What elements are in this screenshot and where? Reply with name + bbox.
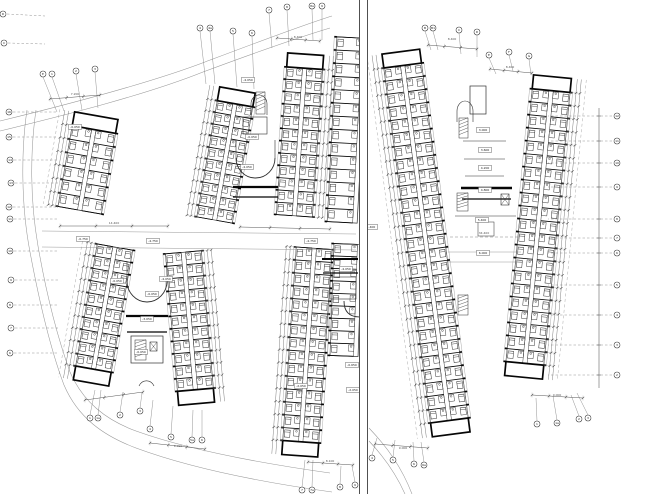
elevation-label: -4.050 <box>340 266 353 271</box>
svg-text:9: 9 <box>321 4 323 8</box>
svg-text:8: 8 <box>616 217 618 221</box>
grid-bubble: 1 <box>49 71 55 77</box>
svg-text:7: 7 <box>301 488 303 492</box>
grid-bubble: 4 <box>369 455 375 461</box>
elevation-label: -4.050 <box>160 276 173 281</box>
svg-text:1: 1 <box>89 416 91 420</box>
grid-bubble: 8a <box>309 3 315 9</box>
dimension-text: 8.400 <box>294 35 303 39</box>
svg-text:9: 9 <box>616 185 618 189</box>
grid-bubble: 6 <box>411 461 417 467</box>
grid-bubble: B <box>422 25 428 31</box>
svg-text:5: 5 <box>616 283 618 287</box>
svg-text:1a: 1a <box>555 421 559 425</box>
svg-text:3: 3 <box>616 343 618 347</box>
grid-bubble: 2 <box>614 372 620 378</box>
grid-bubble: 9 <box>614 184 620 190</box>
svg-text:12: 12 <box>7 205 11 209</box>
svg-text:-4.050: -4.050 <box>243 78 253 82</box>
svg-text:5: 5 <box>170 435 172 439</box>
svg-text:1: 1 <box>51 72 53 76</box>
grid-bubble: 5a <box>189 437 195 443</box>
grid-bubble: 4a <box>207 25 213 31</box>
svg-text:11: 11 <box>8 217 12 221</box>
dimension-text: 8.400 <box>506 65 515 69</box>
dimension-text: 9.000 <box>174 444 183 448</box>
elevation-label: -0.650 <box>346 362 359 367</box>
svg-text:4: 4 <box>371 456 373 460</box>
svg-text:-3.050: -3.050 <box>142 317 152 321</box>
svg-text:-4.050: -4.050 <box>161 277 171 281</box>
dimension-text: 14.400 <box>109 221 120 225</box>
svg-text:9: 9 <box>10 278 12 282</box>
svg-text:-0.750: -0.750 <box>78 237 88 241</box>
grid-bubble: 6 <box>249 30 255 36</box>
grid-bubble: 3 <box>585 415 591 421</box>
svg-text:5a: 5a <box>190 438 194 442</box>
svg-text:E: E <box>488 53 490 57</box>
grid-bubble: 1a <box>554 420 560 426</box>
svg-text:6: 6 <box>251 31 253 35</box>
dimension-text: 7.200 <box>71 92 80 96</box>
grid-bubble: D <box>474 29 480 35</box>
grid-bubble: 13 <box>8 180 14 186</box>
grid-bubble: E <box>486 52 492 58</box>
svg-text:3.600: 3.600 <box>481 148 490 152</box>
floor-plan-drawing: -0.050-4.050-0.050-4.050-0.750-4.750-0.0… <box>0 0 650 494</box>
elevation-label: -4.750 <box>305 238 318 243</box>
svg-text:-0.050: -0.050 <box>112 279 122 283</box>
grid-bubble: 1a <box>95 415 101 421</box>
svg-text:1: 1 <box>536 422 538 426</box>
elevation-label: -4.050 <box>241 164 254 169</box>
svg-text:2: 2 <box>75 69 77 73</box>
svg-text:6.000: 6.000 <box>479 251 488 255</box>
svg-text:7: 7 <box>10 326 12 330</box>
dimension-text: 9.000 <box>553 393 562 397</box>
elevation-label: 5.400 <box>476 217 489 222</box>
elevation-label: -4.750 <box>147 238 160 243</box>
svg-text:2: 2 <box>578 417 580 421</box>
svg-text:14: 14 <box>8 158 12 162</box>
svg-text:-0.650: -0.650 <box>347 363 357 367</box>
grid-bubble: 6a <box>421 462 427 468</box>
dimension-text: 34.400 <box>479 231 490 235</box>
svg-text:12: 12 <box>615 114 619 118</box>
elevation-label: 6.000 <box>477 250 490 255</box>
svg-text:16: 16 <box>7 110 11 114</box>
grid-bubble: 2 <box>576 416 582 422</box>
grid-bubble: 16 <box>6 109 12 115</box>
svg-text:3: 3 <box>94 67 96 71</box>
svg-text:15: 15 <box>7 135 11 139</box>
svg-text:3: 3 <box>139 409 141 413</box>
dimension-text: 8.400 <box>448 37 457 41</box>
svg-text:4: 4 <box>199 26 201 30</box>
svg-text:-4.750: -4.750 <box>306 239 316 243</box>
elevation-label: -0.750 <box>77 236 90 241</box>
svg-text:2: 2 <box>119 413 121 417</box>
svg-text:8: 8 <box>286 5 288 9</box>
grid-bubble: 5 <box>168 434 174 440</box>
dimension-text: 8.100 <box>326 459 335 463</box>
drawing-page: -0.050-4.050-0.050-4.050-0.750-4.750-0.0… <box>0 0 650 494</box>
svg-text:8: 8 <box>9 303 11 307</box>
elevation-label: -0.050 <box>111 278 124 283</box>
grid-bubble: 6 <box>199 437 205 443</box>
grid-bubble: 15 <box>6 134 12 140</box>
svg-text:1.400: 1.400 <box>367 225 376 229</box>
elevation-label: -3.050 <box>141 316 154 321</box>
grid-bubble: 8 <box>337 484 343 490</box>
svg-text:-2.050: -2.050 <box>296 384 306 388</box>
svg-text:-0.050: -0.050 <box>147 292 157 296</box>
svg-text:C: C <box>3 41 5 45</box>
elevation-label: -0.050 <box>146 291 159 296</box>
grid-bubble: 3 <box>92 66 98 72</box>
svg-text:4: 4 <box>616 313 618 317</box>
grid-bubble: 12 <box>614 113 620 119</box>
grid-bubble: 10 <box>614 160 620 166</box>
svg-text:7: 7 <box>268 8 270 12</box>
grid-bubble: D <box>0 11 6 17</box>
elevation-label: -4.050 <box>242 77 255 82</box>
grid-bubble: 1 <box>87 415 93 421</box>
grid-bubble: 4 <box>614 312 620 318</box>
grid-bubble: 5 <box>230 28 236 34</box>
grid-bubble: 6 <box>614 250 620 256</box>
elevation-label: 3.000 <box>477 127 490 132</box>
grid-bubble: 6 <box>7 350 13 356</box>
svg-text:-0.050: -0.050 <box>136 350 146 354</box>
svg-text:7a: 7a <box>310 488 314 492</box>
grid-bubble: 9 <box>352 482 358 488</box>
svg-text:-2.050: -2.050 <box>348 388 358 392</box>
svg-text:6a: 6a <box>422 463 426 467</box>
svg-text:-4.050: -4.050 <box>341 267 351 271</box>
svg-text:-0.050: -0.050 <box>70 125 80 129</box>
svg-text:F: F <box>508 50 510 54</box>
svg-text:5: 5 <box>232 29 234 33</box>
grid-bubble: E <box>40 71 46 77</box>
svg-text:E: E <box>42 72 44 76</box>
svg-text:4: 4 <box>149 427 151 431</box>
grid-bubble: 4 <box>197 25 203 31</box>
dimension-text: 9.000 <box>399 446 408 450</box>
grid-bubble: G <box>526 53 532 59</box>
grid-bubble: 3 <box>137 408 143 414</box>
svg-text:-4.050: -4.050 <box>242 165 252 169</box>
grid-bubble: 7 <box>614 235 620 241</box>
grid-bubble: 2 <box>117 412 123 418</box>
grid-bubble: 1 <box>534 421 540 427</box>
grid-bubble: 9 <box>8 277 14 283</box>
svg-text:10: 10 <box>8 249 12 253</box>
svg-text:9: 9 <box>354 483 356 487</box>
svg-text:4.800: 4.800 <box>481 188 490 192</box>
svg-text:8a: 8a <box>310 4 314 8</box>
grid-bubble: 11 <box>7 216 13 222</box>
svg-text:3: 3 <box>587 416 589 420</box>
svg-text:11: 11 <box>615 139 619 143</box>
svg-text:10: 10 <box>615 161 619 165</box>
elevation-label: -0.050 <box>135 349 148 354</box>
svg-text:5.400: 5.400 <box>478 218 487 222</box>
svg-text:4a: 4a <box>208 26 212 30</box>
grid-bubble: 11 <box>614 138 620 144</box>
grid-bubble: 7 <box>266 7 272 13</box>
grid-bubble: 2 <box>73 68 79 74</box>
elevation-label: -0.050 <box>69 124 82 129</box>
grid-bubble: 8 <box>284 4 290 10</box>
grid-bubble: 3 <box>614 342 620 348</box>
grid-bubble: 8 <box>7 302 13 308</box>
grid-bubble: 9 <box>319 3 325 9</box>
svg-text:13: 13 <box>9 181 13 185</box>
svg-text:B: B <box>424 26 426 30</box>
grid-bubble: 8 <box>614 216 620 222</box>
svg-text:5: 5 <box>392 458 394 462</box>
svg-text:7: 7 <box>616 236 618 240</box>
svg-text:B1: B1 <box>431 26 435 30</box>
svg-text:-0.050: -0.050 <box>247 135 257 139</box>
svg-text:-4.750: -4.750 <box>148 239 158 243</box>
svg-text:6: 6 <box>616 251 618 255</box>
elevation-label: 4.800 <box>479 187 492 192</box>
grid-bubble: 5 <box>390 457 396 463</box>
svg-text:8: 8 <box>339 485 341 489</box>
elevation-label: -0.050 <box>246 134 259 139</box>
elevation-label: 3.600 <box>479 147 492 152</box>
grid-bubble: F <box>506 49 512 55</box>
grid-bubble: 12 <box>6 204 12 210</box>
svg-text:C: C <box>458 28 460 32</box>
grid-bubble: 7 <box>8 325 14 331</box>
grid-bubble: 10 <box>7 248 13 254</box>
grid-bubble: 5 <box>614 282 620 288</box>
svg-text:6: 6 <box>201 438 203 442</box>
svg-text:2: 2 <box>616 373 618 377</box>
grid-bubble: C <box>1 40 7 46</box>
svg-text:1a: 1a <box>96 416 100 420</box>
grid-bubble: 7a <box>309 487 315 493</box>
grid-bubble: 7 <box>299 487 305 493</box>
grid-bubble: C <box>456 27 462 33</box>
grid-bubble: B1 <box>430 25 436 31</box>
svg-text:3.000: 3.000 <box>479 128 488 132</box>
svg-text:6: 6 <box>413 462 415 466</box>
grid-bubble: 4 <box>147 426 153 432</box>
elevation-label: -2.050 <box>295 383 308 388</box>
elevation-label: 4.200 <box>479 165 492 170</box>
grid-bubble: 14 <box>7 157 13 163</box>
svg-text:4.200: 4.200 <box>481 166 490 170</box>
elevation-label: -2.050 <box>347 387 360 392</box>
svg-text:6: 6 <box>9 351 11 355</box>
